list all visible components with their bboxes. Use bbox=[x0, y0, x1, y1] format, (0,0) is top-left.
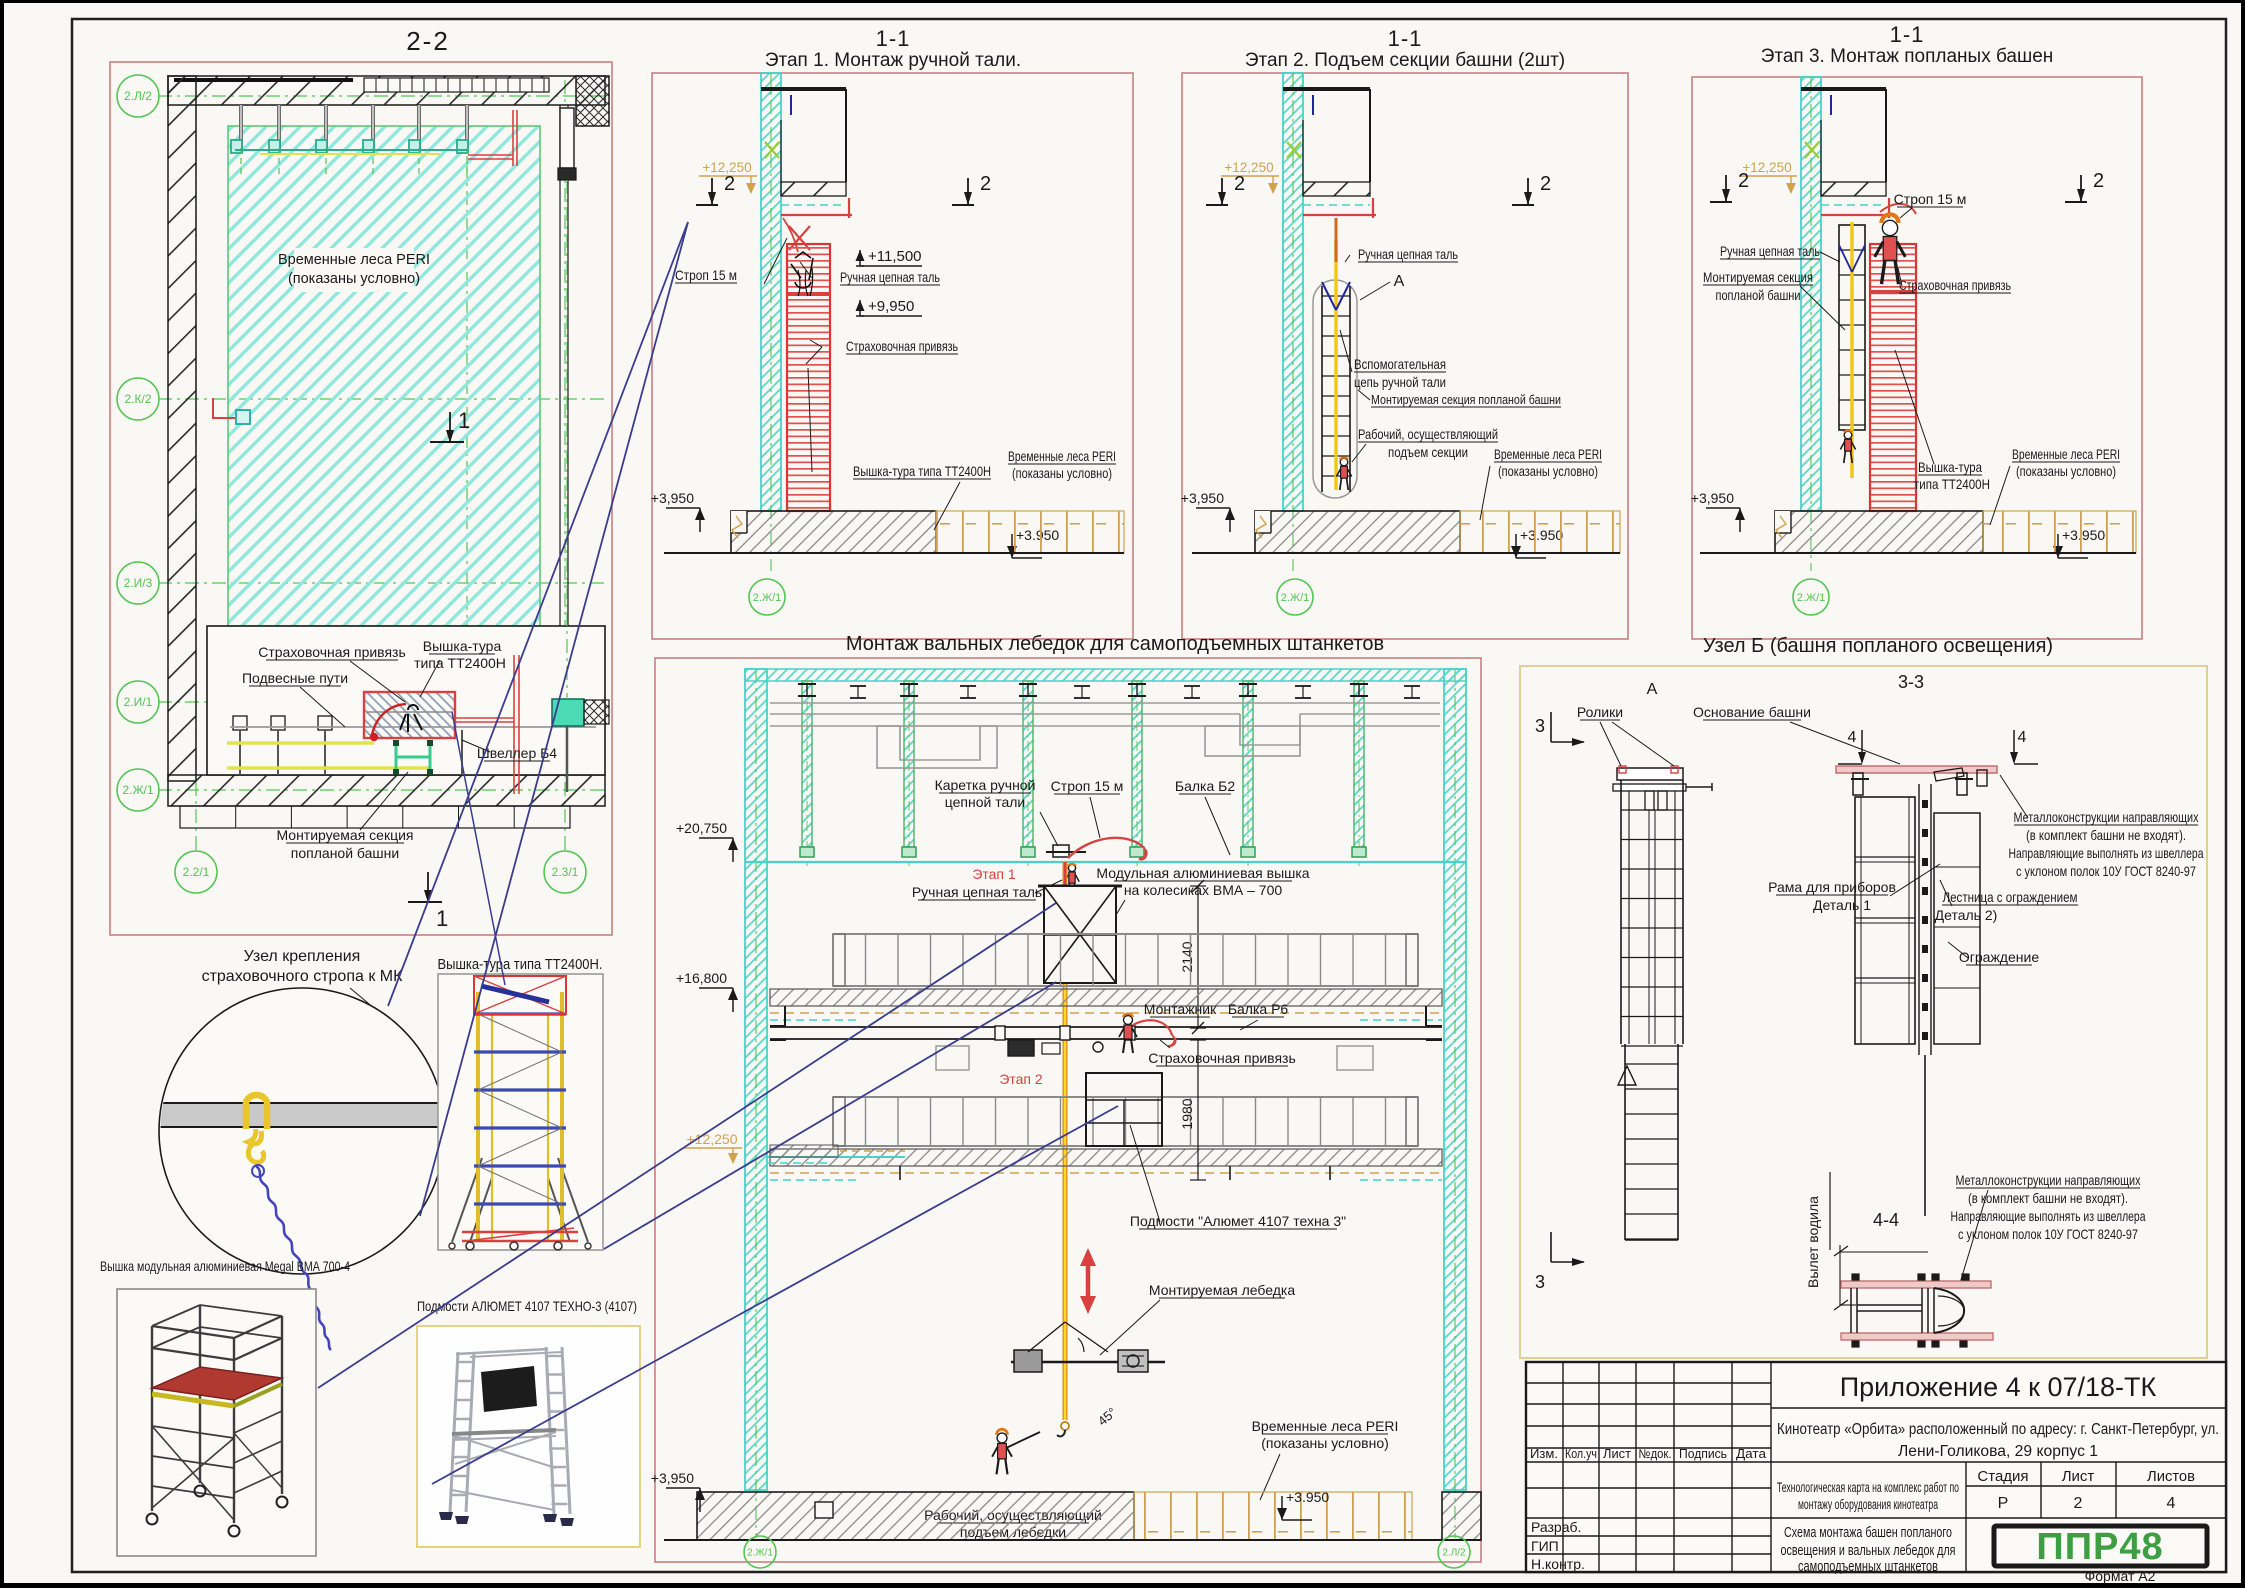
svg-text:ГИП: ГИП bbox=[1531, 1538, 1559, 1554]
svg-text:2: 2 bbox=[1540, 173, 1551, 195]
svg-text:Строп 15 м: Строп 15 м bbox=[1051, 778, 1124, 794]
svg-text:Металлоконструкции направляющи: Металлоконструкции направляющих bbox=[1956, 1172, 2141, 1188]
svg-text:цепной тали: цепной тали bbox=[945, 794, 1026, 810]
svg-text:Этап 1: Этап 1 bbox=[972, 866, 1016, 882]
svg-text:типа ТТ2400Н: типа ТТ2400Н bbox=[414, 655, 506, 671]
svg-text:Временные леса PERI: Временные леса PERI bbox=[1008, 448, 1116, 464]
svg-text:монтажу оборудования кинотеатр: монтажу оборудования кинотеатра bbox=[1798, 1497, 1938, 1512]
svg-text:Деталь 2): Деталь 2) bbox=[1935, 907, 1998, 923]
svg-text:Балка Б2: Балка Б2 bbox=[1175, 778, 1235, 794]
svg-text:Ручная цепная таль: Ручная цепная таль bbox=[1720, 243, 1820, 259]
svg-text:Подпись: Подпись bbox=[1679, 1447, 1727, 1461]
svg-text:на колесиках ВМА – 700: на колесиках ВМА – 700 bbox=[1124, 882, 1283, 898]
svg-text:2: 2 bbox=[1738, 170, 1749, 192]
svg-text:Подмости "Алюмет 4107 техна 3": Подмости "Алюмет 4107 техна 3" bbox=[1130, 1213, 1346, 1229]
svg-text:2.Ж/1: 2.Ж/1 bbox=[747, 1548, 773, 1559]
svg-text:Р: Р bbox=[1998, 1495, 2009, 1512]
svg-text:Временные леса PERI: Временные леса PERI bbox=[2012, 446, 2120, 462]
svg-text:Ручная цепная таль: Ручная цепная таль bbox=[1358, 246, 1458, 262]
svg-text:4: 4 bbox=[2167, 1495, 2176, 1512]
svg-text:Стадия: Стадия bbox=[1977, 1468, 2028, 1485]
svg-text:Вылет водила: Вылет водила bbox=[1805, 1196, 1821, 1288]
svg-text:Вышка модульная алюминиевая Me: Вышка модульная алюминиевая Megal ВМА 70… bbox=[100, 1258, 350, 1274]
svg-text:попланой башни: попланой башни bbox=[1716, 287, 1801, 303]
svg-text:Этап 2. Подъем секции башни (2: Этап 2. Подъем секции башни (2шт) bbox=[1245, 50, 1565, 71]
svg-text:Лестница с ограждением: Лестница с ограждением bbox=[1943, 889, 2078, 905]
svg-text:3: 3 bbox=[1535, 1272, 1545, 1292]
svg-text:Модульная алюминиевая вышка: Модульная алюминиевая вышка bbox=[1096, 865, 1309, 881]
svg-text:Н.контр.: Н.контр. bbox=[1531, 1556, 1585, 1572]
svg-text:Изм.: Изм. bbox=[1530, 1447, 1558, 1461]
svg-text:+12,250: +12,250 bbox=[687, 1131, 738, 1147]
svg-text:Кинотеатр «Орбита» расположенн: Кинотеатр «Орбита» расположенный по адре… bbox=[1777, 1421, 2219, 1438]
svg-text:(показаны условно): (показаны условно) bbox=[1012, 465, 1112, 481]
svg-text:Вышка-тура: Вышка-тура bbox=[423, 638, 502, 654]
svg-text:2: 2 bbox=[2074, 1495, 2083, 1512]
svg-text:+16,800: +16,800 bbox=[676, 970, 727, 986]
svg-text:2.Ж/1: 2.Ж/1 bbox=[122, 783, 153, 797]
svg-text:1-1: 1-1 bbox=[1388, 26, 1423, 51]
svg-text:+12,250: +12,250 bbox=[1224, 160, 1273, 175]
svg-text:Листов: Листов bbox=[2147, 1468, 2195, 1485]
svg-text:2: 2 bbox=[980, 173, 991, 195]
svg-text:2-2: 2-2 bbox=[406, 26, 450, 56]
svg-text:3: 3 bbox=[1535, 716, 1545, 736]
svg-text:Строп 15 м: Строп 15 м bbox=[675, 267, 737, 283]
svg-text:1: 1 bbox=[436, 906, 448, 931]
svg-text:Ролики: Ролики bbox=[1577, 704, 1623, 720]
svg-text:Временные леса PERI: Временные леса PERI bbox=[1252, 1418, 1399, 1434]
svg-text:1-1: 1-1 bbox=[1890, 22, 1925, 47]
svg-text:+12,250: +12,250 bbox=[1742, 160, 1791, 175]
svg-text:(показаны условно): (показаны условно) bbox=[1261, 1435, 1389, 1451]
svg-text:2140: 2140 bbox=[1179, 941, 1195, 972]
svg-text:Строп 15 м: Строп 15 м bbox=[1894, 191, 1967, 207]
svg-text:2.Л/2: 2.Л/2 bbox=[1442, 1548, 1466, 1559]
svg-text:1-1: 1-1 bbox=[876, 26, 911, 51]
svg-text:Страховочная привязь: Страховочная привязь bbox=[1899, 277, 2011, 293]
svg-text:+3.950: +3.950 bbox=[1286, 1489, 1329, 1505]
svg-text:Этап 2: Этап 2 bbox=[999, 1071, 1043, 1087]
svg-text:4-4: 4-4 bbox=[1873, 1210, 1899, 1230]
svg-text:ППР48: ППР48 bbox=[2036, 1526, 2163, 1568]
svg-text:+9,950: +9,950 bbox=[868, 298, 914, 315]
svg-text:Рама для приборов: Рама для приборов bbox=[1768, 879, 1896, 895]
svg-text:освещения и вальных лебедок дл: освещения и вальных лебедок для bbox=[1781, 1543, 1956, 1559]
svg-text:типа ТТ2400Н: типа ТТ2400Н bbox=[1914, 476, 1990, 492]
svg-text:1980: 1980 bbox=[1179, 1098, 1195, 1129]
svg-text:2.И/3: 2.И/3 bbox=[124, 576, 153, 590]
svg-text:А: А bbox=[1647, 681, 1658, 698]
svg-text:цепь ручной тали: цепь ручной тали bbox=[1354, 374, 1446, 390]
svg-text:Лист: Лист bbox=[2062, 1468, 2095, 1485]
svg-text:(в комплект башни не входят).: (в комплект башни не входят). bbox=[2026, 827, 2186, 843]
svg-text:+20,750: +20,750 bbox=[676, 820, 727, 836]
svg-text:№док.: №док. bbox=[1639, 1447, 1672, 1461]
svg-text:2: 2 bbox=[2093, 170, 2104, 192]
svg-text:Балка Р6: Балка Р6 bbox=[1228, 1001, 1289, 1017]
svg-text:Лист: Лист bbox=[1603, 1447, 1631, 1461]
svg-text:с уклоном полок 10У ГОСТ 8240-: с уклоном полок 10У ГОСТ 8240-97 bbox=[1958, 1226, 2138, 1242]
svg-text:Страховочная привязь: Страховочная привязь bbox=[1148, 1050, 1296, 1066]
svg-text:Узел крепления: Узел крепления bbox=[244, 948, 361, 965]
svg-text:2.Л/2: 2.Л/2 bbox=[124, 89, 152, 103]
svg-text:Основание башни: Основание башни bbox=[1693, 704, 1811, 720]
svg-text:Этап 1. Монтаж ручной тали.: Этап 1. Монтаж ручной тали. bbox=[765, 50, 1021, 71]
svg-text:+3,950: +3,950 bbox=[1691, 490, 1734, 506]
svg-text:+3,950: +3,950 bbox=[1181, 490, 1224, 506]
svg-text:2: 2 bbox=[1234, 173, 1245, 195]
svg-text:подъем секции: подъем секции bbox=[1388, 444, 1468, 460]
svg-text:Дата: Дата bbox=[1736, 1447, 1766, 1461]
svg-text:Каретка ручной: Каретка ручной bbox=[935, 777, 1036, 793]
svg-text:2.2/1: 2.2/1 bbox=[183, 865, 210, 879]
svg-text:Страховочная привязь: Страховочная привязь bbox=[258, 644, 406, 660]
svg-text:Узел Б (башня попланого освеще: Узел Б (башня попланого освещения) bbox=[1703, 635, 2053, 657]
svg-text:(показаны условно): (показаны условно) bbox=[2016, 463, 2116, 479]
svg-text:Вышка-тура типа ТТ2400Н: Вышка-тура типа ТТ2400Н bbox=[853, 463, 991, 479]
svg-text:Приложение 4 к 07/18-ТК: Приложение 4 к 07/18-ТК bbox=[1840, 1372, 2157, 1402]
svg-text:Монтируемая лебедка: Монтируемая лебедка bbox=[1149, 1282, 1295, 1298]
svg-text:Монтаж вальных лебедок для сам: Монтаж вальных лебедок для самоподъемных… bbox=[846, 633, 1384, 655]
svg-text:Технологическая карта на компл: Технологическая карта на комплекс работ … bbox=[1777, 1480, 1959, 1495]
svg-text:4: 4 bbox=[2018, 729, 2027, 746]
svg-text:2.К/2: 2.К/2 bbox=[124, 392, 151, 406]
svg-text:Монтируемая секция: Монтируемая секция bbox=[276, 827, 413, 843]
svg-text:Лени-Голикова, 29 корпус 1: Лени-Голикова, 29 корпус 1 bbox=[1898, 1443, 2098, 1460]
svg-text:Ручная цепная таль: Ручная цепная таль bbox=[840, 269, 940, 285]
svg-text:2.Ж/1: 2.Ж/1 bbox=[753, 592, 782, 604]
svg-text:Ручная цепная таль: Ручная цепная таль bbox=[912, 884, 1042, 900]
svg-text:Монтируемая секция: Монтируемая секция bbox=[1703, 269, 1813, 285]
svg-text:Кол.уч: Кол.уч bbox=[1565, 1447, 1597, 1461]
svg-text:Страховочная привязь: Страховочная привязь bbox=[846, 338, 958, 354]
svg-text:(показаны условно): (показаны условно) bbox=[1498, 463, 1598, 479]
svg-text:Временные леса PERI: Временные леса PERI bbox=[1494, 446, 1602, 462]
svg-text:Разраб.: Разраб. bbox=[1531, 1519, 1581, 1535]
svg-text:+3,950: +3,950 bbox=[651, 1470, 694, 1486]
svg-text:2.3/1: 2.3/1 bbox=[552, 865, 579, 879]
svg-text:(показаны условно): (показаны условно) bbox=[288, 271, 420, 287]
svg-text:Вышка-тура: Вышка-тура bbox=[1918, 459, 1982, 475]
svg-text:2.Ж/1: 2.Ж/1 bbox=[1281, 592, 1310, 604]
svg-text:самоподъемных штанкетов: самоподъемных штанкетов bbox=[1798, 1559, 1938, 1575]
svg-text:(в комплект башни не входят).: (в комплект башни не входят). bbox=[1968, 1190, 2128, 1206]
svg-text:4: 4 bbox=[1848, 729, 1857, 746]
svg-text:Подвесные пути: Подвесные пути bbox=[242, 670, 348, 686]
svg-text:Деталь 1: Деталь 1 bbox=[1813, 897, 1871, 913]
svg-text:Этап 3. Монтаж попланых башен: Этап 3. Монтаж попланых башен bbox=[1761, 46, 2054, 67]
svg-text:Монтажник: Монтажник bbox=[1144, 1001, 1217, 1017]
svg-text:1: 1 bbox=[458, 408, 470, 433]
svg-text:Вспомогательная: Вспомогательная bbox=[1354, 356, 1446, 372]
svg-text:2.И/1: 2.И/1 bbox=[124, 695, 153, 709]
svg-text:Металлоконструкции направляющи: Металлоконструкции направляющих bbox=[2014, 809, 2199, 825]
svg-text:попланой башни: попланой башни bbox=[291, 845, 399, 861]
svg-text:Схема монтажа башен попланого: Схема монтажа башен попланого bbox=[1784, 1525, 1952, 1541]
svg-text:Направляющие выполнять из швел: Направляющие выполнять из швеллера bbox=[2009, 845, 2204, 861]
svg-text:+11,500: +11,500 bbox=[868, 248, 922, 265]
svg-text:А: А bbox=[1394, 273, 1405, 290]
svg-text:с уклоном полок 10У ГОСТ 8240-: с уклоном полок 10У ГОСТ 8240-97 bbox=[2016, 863, 2196, 879]
svg-text:Ограждение: Ограждение bbox=[1959, 949, 2039, 965]
svg-text:+3,950: +3,950 bbox=[651, 490, 694, 506]
svg-text:Монтируемая секция попланой ба: Монтируемая секция попланой башни bbox=[1371, 392, 1561, 407]
svg-text:Вышка-тура типа ТТ2400Н.: Вышка-тура типа ТТ2400Н. bbox=[438, 957, 603, 973]
svg-text:страховочного стропа к МК: страховочного стропа к МК bbox=[202, 968, 404, 985]
svg-text:2: 2 bbox=[724, 173, 735, 195]
svg-text:3-3: 3-3 bbox=[1898, 672, 1924, 692]
svg-text:2.Ж/1: 2.Ж/1 bbox=[1797, 592, 1826, 604]
svg-text:Рабочий, осуществляющий: Рабочий, осуществляющий bbox=[1358, 426, 1498, 442]
svg-text:Временные леса PERI: Временные леса PERI bbox=[278, 252, 430, 268]
